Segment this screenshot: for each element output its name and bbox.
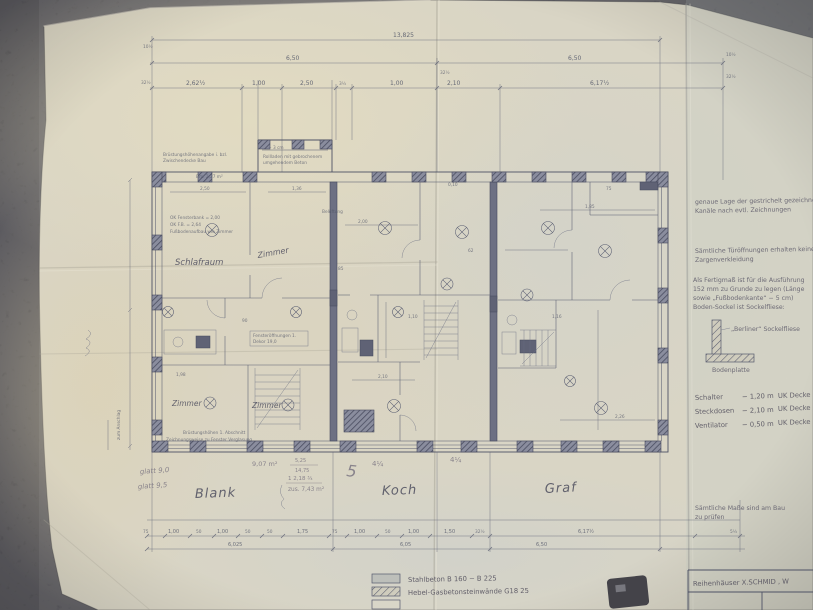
room-zimmer-b2: Zimmer [251, 401, 282, 410]
sdim-3: 2,00 [358, 219, 368, 225]
note-top-left-1: Brüstungshöhenangabe i. bzl. [163, 152, 227, 158]
note-room-2: OK F.B. = 2,64 [170, 222, 201, 228]
room-zimmer-b1: Zimmer [171, 399, 202, 408]
note-room-3: Fußbodenaufbau wie Zimmer [170, 229, 233, 235]
note-fensterbox-1: Fensteröffnungen 1. [253, 333, 296, 339]
bdim2-2: 6,50 [536, 542, 547, 548]
dim-span-right: 6,50 [568, 55, 582, 62]
height-value-0: − 1,20 m [742, 392, 774, 401]
bdim-8: 1,00 [354, 529, 365, 535]
pencil-mark-5: 5 [346, 461, 358, 481]
pencil-total: zus. 7,43 m² [288, 486, 324, 493]
dim-r3-2: 2,50 [300, 80, 314, 87]
sdim-11: 2,10 [378, 374, 388, 380]
note-bottom-1: Brüstungshöhen 1. Abschnitt [183, 430, 246, 436]
tick-label-tr1: 10½ [726, 51, 736, 58]
pencil-frac-mid: 14,75 [295, 468, 309, 474]
bdim-0: 75 [143, 529, 149, 535]
note-top-left-2: Zwischendecke Bau [163, 158, 206, 164]
note-bottom-2: Zeichnungsweise zu Fenster Verglasung [166, 437, 252, 443]
paper-sheet [0, 0, 813, 610]
sdim-8: 2,26 [615, 414, 625, 420]
unit-name-graf: Graf [544, 480, 578, 497]
bdim-12: 32½ [475, 528, 485, 535]
legend-swatch-gasbeton [372, 587, 400, 596]
height-ref-1: UK Decke [778, 404, 811, 413]
photo-of-floor-plan: 13,825 6,50 6,50 2,62½ 1,00 2,50 3¼ 1,00… [0, 0, 813, 610]
unit-name-blank: Blank [195, 486, 237, 502]
sdim-13: 75 [606, 186, 612, 192]
bdim2-0: 6,025 [228, 542, 242, 548]
height-item-2: Ventilator [695, 421, 728, 430]
note-bay-1: Rollladen mit gebrochenem [263, 154, 322, 160]
note-fensterbox-2: Dekor 19,0 [253, 339, 277, 345]
bdim-6: 1,75 [297, 529, 308, 535]
note-bay-2: umgehendem Beton [263, 160, 307, 166]
margin-note2-l2: Zargenverkleidung [695, 256, 754, 264]
dim-r3-0: 2,62½ [186, 80, 205, 87]
sdim-10: 90 [242, 318, 248, 324]
bdim2-1: 6,05 [400, 542, 411, 548]
sdim-6: 1,85 [585, 204, 595, 210]
bdim-5: 50 [267, 529, 273, 535]
dark-object [607, 575, 650, 609]
bdim-11: 1,50 [444, 529, 455, 535]
label-belueftung: Belüftung [322, 209, 343, 215]
margin-note4-l2: zu prüfen [695, 514, 725, 521]
margin-note3-l1: Als Fertigmaß ist für die Ausführung [693, 277, 805, 284]
party-wall-1 [330, 182, 337, 441]
height-value-1: − 2,10 m [742, 406, 774, 415]
tick-label-tr2: 32½ [726, 73, 736, 80]
pencil-area: 9,07 m² [252, 460, 278, 468]
dim-r3-6: 6,17½ [590, 80, 609, 87]
margin-note4-l1: Sämtliche Maße sind am Bau [695, 505, 785, 512]
bdim-14: 5¼ [730, 529, 738, 535]
dim-r3-5: 2,10 [447, 80, 461, 87]
pencil-frac-line: 1 2,18 ¾ [288, 476, 313, 482]
sdim-1: 1,36 [292, 186, 302, 192]
mounting-heights-list: Schalter − 1,20 m UK Decke Steckdosen − … [695, 391, 811, 430]
floor-plan-scene: 13,825 6,50 6,50 2,62½ 1,00 2,50 3¼ 1,00… [0, 0, 813, 610]
sdim-9: 1,16 [552, 314, 562, 320]
pencil-mark-4a: 4¼ [372, 460, 383, 468]
note-left-vertical: zum Anschlag [116, 410, 122, 440]
bdim-3: 1,00 [217, 529, 228, 535]
dim-overall: 13,825 [393, 32, 414, 39]
margin-note3-l4: Boden-Sockel ist Sockelfliese: [693, 304, 785, 311]
legend-label-stahlbeton: Stahlbeton B 160 − B 225 [408, 574, 497, 584]
dim-r3-3: 3¼ [339, 81, 347, 87]
bdim-4: 50 [245, 529, 251, 535]
pencil-frac-top: 5,25 [295, 458, 306, 464]
bdim-7: 75 [332, 529, 338, 535]
height-value-2: − 0,50 m [742, 420, 774, 429]
legend-swatch-empty [372, 600, 400, 609]
detail-label-sockelfliese: „Berliner“ Sockelfliese [731, 326, 800, 333]
legend-swatch-stahlbeton [372, 574, 400, 583]
sdim-7: 62 [468, 248, 474, 254]
pencil-mark-4b: 4¼ [450, 456, 461, 464]
bdim-10: 1,00 [408, 529, 419, 535]
bdim-2: 50 [196, 529, 202, 535]
margin-note3-l2: 152 mm zu Grunde zu legen (Länge [693, 286, 805, 293]
sdim-12: 1,98 [176, 372, 186, 378]
height-ref-2: UK Decke [778, 418, 811, 427]
height-item-1: Steckdosen [695, 407, 735, 416]
note-bay-offset: − 3 cm [268, 145, 284, 151]
dim-span-left: 6,50 [286, 55, 300, 62]
note-area-badge: Bm. 2,27 m² [196, 174, 223, 180]
tick-label-mid: 32½ [440, 69, 450, 76]
bdim-13: 6,17½ [578, 528, 594, 535]
dim-r3-1: 1,00 [252, 80, 266, 87]
sdim-2: 0,10 [448, 182, 458, 188]
dim-r3-4: 1,00 [390, 80, 404, 87]
height-ref-0: UK Decke [778, 391, 811, 400]
detail-label-bodenplatte: Bodenplatte [712, 367, 750, 374]
bdim-1: 1,00 [168, 529, 179, 535]
height-item-0: Schalter [695, 393, 724, 402]
tick-label-tl1: 10½ [143, 43, 153, 50]
margin-note3-l3: sowie „Fußbodenkante“ − 5 cm) [693, 295, 793, 302]
sdim-4: 85 [338, 266, 344, 272]
note-room-1: OK Fensterbank = 2,00 [170, 215, 220, 221]
bdim-9: 50 [385, 529, 391, 535]
sdim-0: 2,50 [200, 186, 210, 192]
sdim-5: 1,10 [408, 314, 418, 320]
room-schlafraum: Schlafraum [175, 258, 223, 268]
unit-name-koch: Koch [382, 483, 418, 499]
tick-label-tl2: 32½ [141, 79, 151, 86]
